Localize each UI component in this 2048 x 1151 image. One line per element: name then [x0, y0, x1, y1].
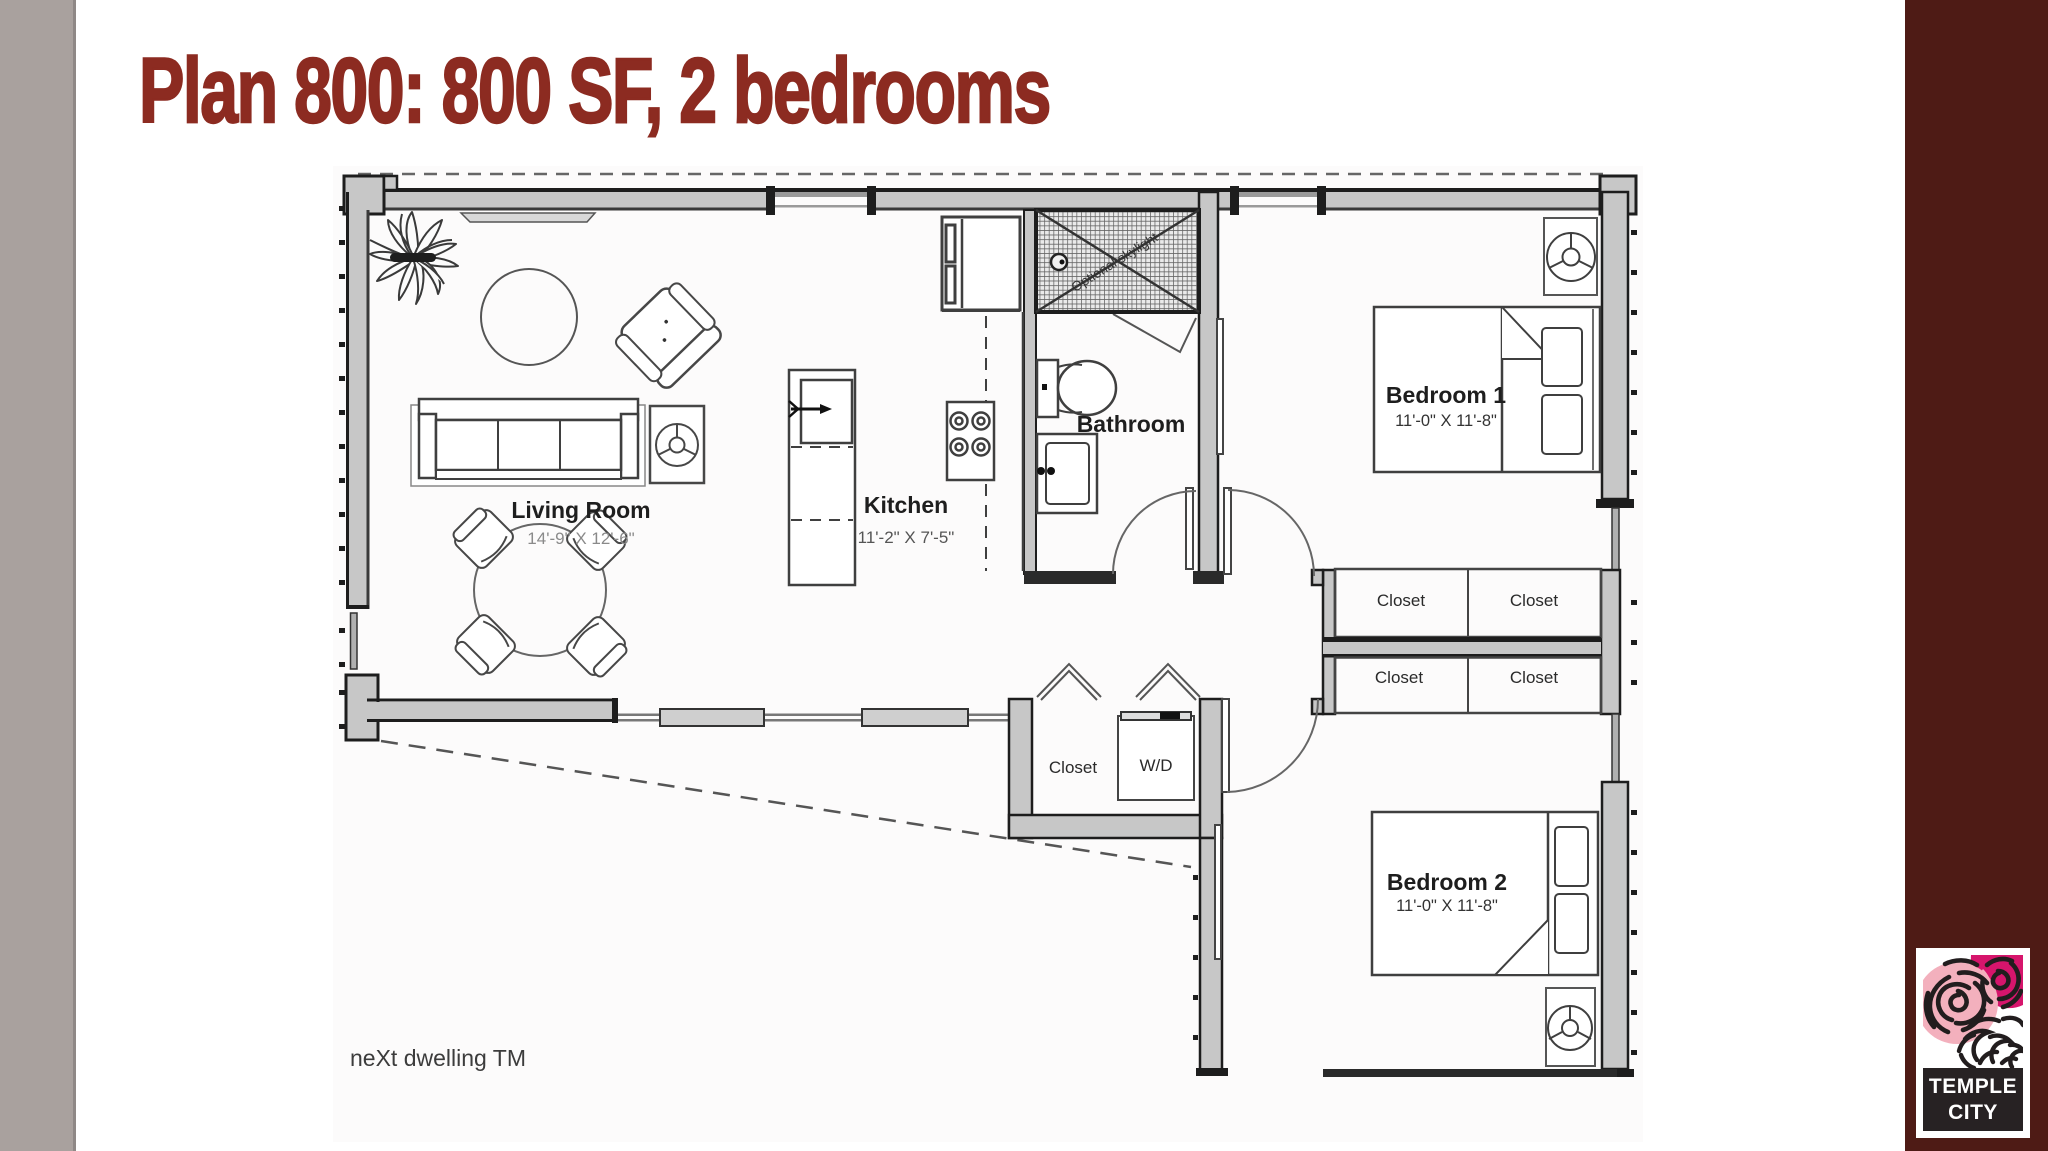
- svg-text:Closet: Closet: [1510, 591, 1558, 610]
- svg-text:Bedroom 2: Bedroom 2: [1387, 869, 1507, 895]
- svg-text:11'-2" X 7'-5": 11'-2" X 7'-5": [858, 528, 955, 547]
- svg-text:Closet: Closet: [1049, 758, 1097, 777]
- svg-text:Closet: Closet: [1377, 591, 1425, 610]
- svg-text:Bedroom 1: Bedroom 1: [1386, 382, 1506, 408]
- svg-text:W/D: W/D: [1139, 756, 1172, 775]
- svg-text:Closet: Closet: [1375, 668, 1423, 687]
- svg-text:Living Room: Living Room: [511, 497, 650, 523]
- svg-text:14'-9" X 12'-6": 14'-9" X 12'-6": [527, 529, 634, 548]
- svg-text:11'-0" X 11'-8": 11'-0" X 11'-8": [1396, 897, 1498, 915]
- svg-text:11'-0" X 11'-8": 11'-0" X 11'-8": [1395, 412, 1497, 430]
- svg-text:Kitchen: Kitchen: [864, 492, 948, 518]
- svg-text:neXt dwelling TM: neXt dwelling TM: [350, 1045, 526, 1071]
- svg-text:Bathroom: Bathroom: [1077, 411, 1186, 437]
- svg-text:Closet: Closet: [1510, 668, 1558, 687]
